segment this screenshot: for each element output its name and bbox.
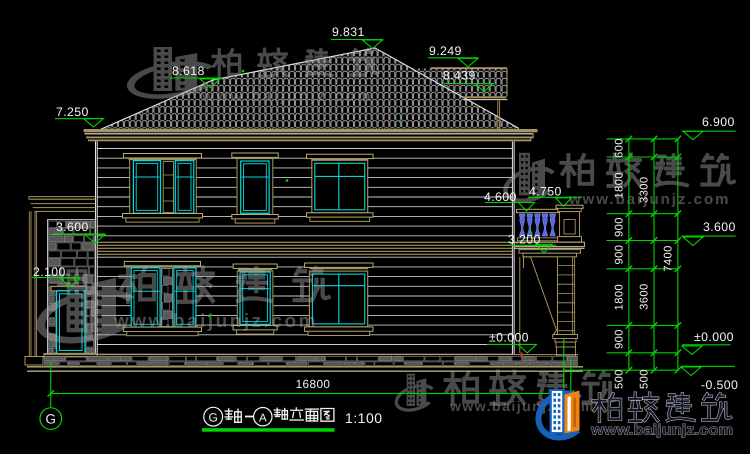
svg-text:7.250: 7.250 <box>56 105 89 119</box>
svg-text:3300: 3300 <box>639 176 651 203</box>
svg-text:1800: 1800 <box>614 284 626 311</box>
svg-text:1800: 1800 <box>614 172 626 199</box>
svg-text:900: 900 <box>614 329 626 349</box>
svg-text:G: G <box>46 412 57 427</box>
svg-text:4.600: 4.600 <box>484 190 517 204</box>
svg-text:9.831: 9.831 <box>332 25 365 39</box>
svg-text:G: G <box>209 410 218 424</box>
svg-text:3600: 3600 <box>639 283 651 310</box>
svg-text:-0.500: -0.500 <box>701 378 738 392</box>
svg-text:900: 900 <box>614 245 626 265</box>
svg-text:900: 900 <box>614 217 626 237</box>
svg-text:±0.000: ±0.000 <box>694 330 734 344</box>
svg-text:9.249: 9.249 <box>429 44 462 58</box>
svg-text:500: 500 <box>614 369 626 389</box>
svg-text:3.600: 3.600 <box>703 220 736 234</box>
svg-text:8.439: 8.439 <box>443 69 476 83</box>
svg-text:www.baijunjz.com: www.baijunjz.com <box>113 311 318 332</box>
svg-text:1:100: 1:100 <box>345 410 383 426</box>
svg-text:4.750: 4.750 <box>529 185 562 199</box>
svg-text:500: 500 <box>639 369 651 389</box>
svg-text:3.600: 3.600 <box>56 220 89 234</box>
svg-text:7400: 7400 <box>663 245 675 272</box>
svg-text:www.baijunjz.com: www.baijunjz.com <box>201 88 373 105</box>
svg-text:2.100: 2.100 <box>33 265 66 279</box>
svg-text:±0.000: ±0.000 <box>489 331 529 345</box>
svg-text:16800: 16800 <box>296 377 331 391</box>
svg-text:8.618: 8.618 <box>172 64 205 78</box>
svg-text:A: A <box>259 412 267 424</box>
svg-text:600: 600 <box>614 138 626 158</box>
svg-text:6.900: 6.900 <box>702 115 735 129</box>
svg-text:www.baijunjz.com: www.baijunjz.com <box>590 423 733 439</box>
